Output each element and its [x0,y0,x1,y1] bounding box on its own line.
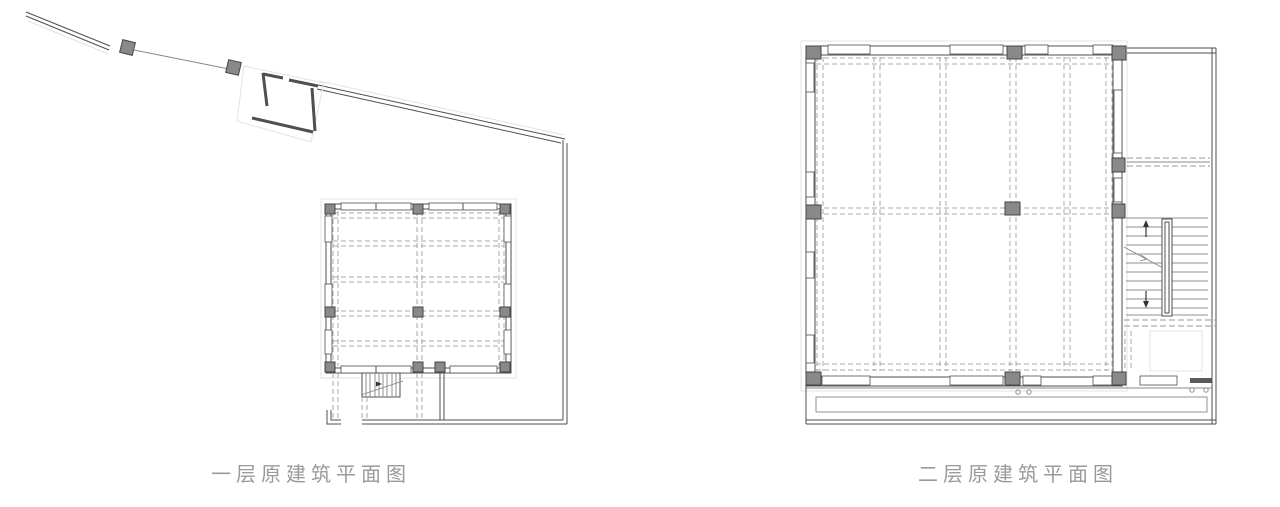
drain-circle [1204,388,1208,392]
main-building [321,199,516,378]
floor-plans-drawing [0,0,1280,507]
column [1112,158,1125,172]
column [435,362,445,372]
fence-column [226,60,242,76]
first-floor-plan [26,12,567,424]
staircase [361,373,403,397]
column [1112,372,1126,385]
column [325,204,335,214]
balcony [806,386,1216,424]
column [413,307,423,317]
column [1005,372,1020,385]
outer-wall [326,204,511,373]
gatehouse-annex-room [237,66,324,142]
column [500,307,510,317]
wall-solid-segment [1190,378,1212,383]
fence-column [120,40,136,56]
column [1007,46,1022,59]
first-floor-caption: 一层原建筑平面图 [211,458,411,487]
stair-flight [1124,218,1208,316]
boundary-corner-return [327,410,341,424]
column [413,362,423,372]
column [325,307,335,317]
column [806,372,821,385]
column [806,205,821,219]
landing-divider [1127,158,1210,166]
balcony-railing [816,397,1207,412]
drain-circle [1027,390,1031,394]
drain-circle [1190,388,1194,392]
outer-wall [806,46,1122,386]
drain-circle [1016,390,1020,394]
column [1112,46,1126,60]
stairwell [1124,48,1216,424]
column [1112,204,1125,218]
stair-center-rail [1162,219,1172,316]
column [500,204,510,214]
stair-break-line [1124,247,1163,268]
column [806,46,821,59]
floor-plans-canvas: 一层原建筑平面图 二层原建筑平面图 [0,0,1280,507]
column [1005,202,1020,215]
column [413,204,423,214]
second-floor-caption: 二层原建筑平面图 [918,458,1118,487]
column [325,362,335,372]
column [500,362,510,372]
second-floor-plan [801,41,1216,424]
